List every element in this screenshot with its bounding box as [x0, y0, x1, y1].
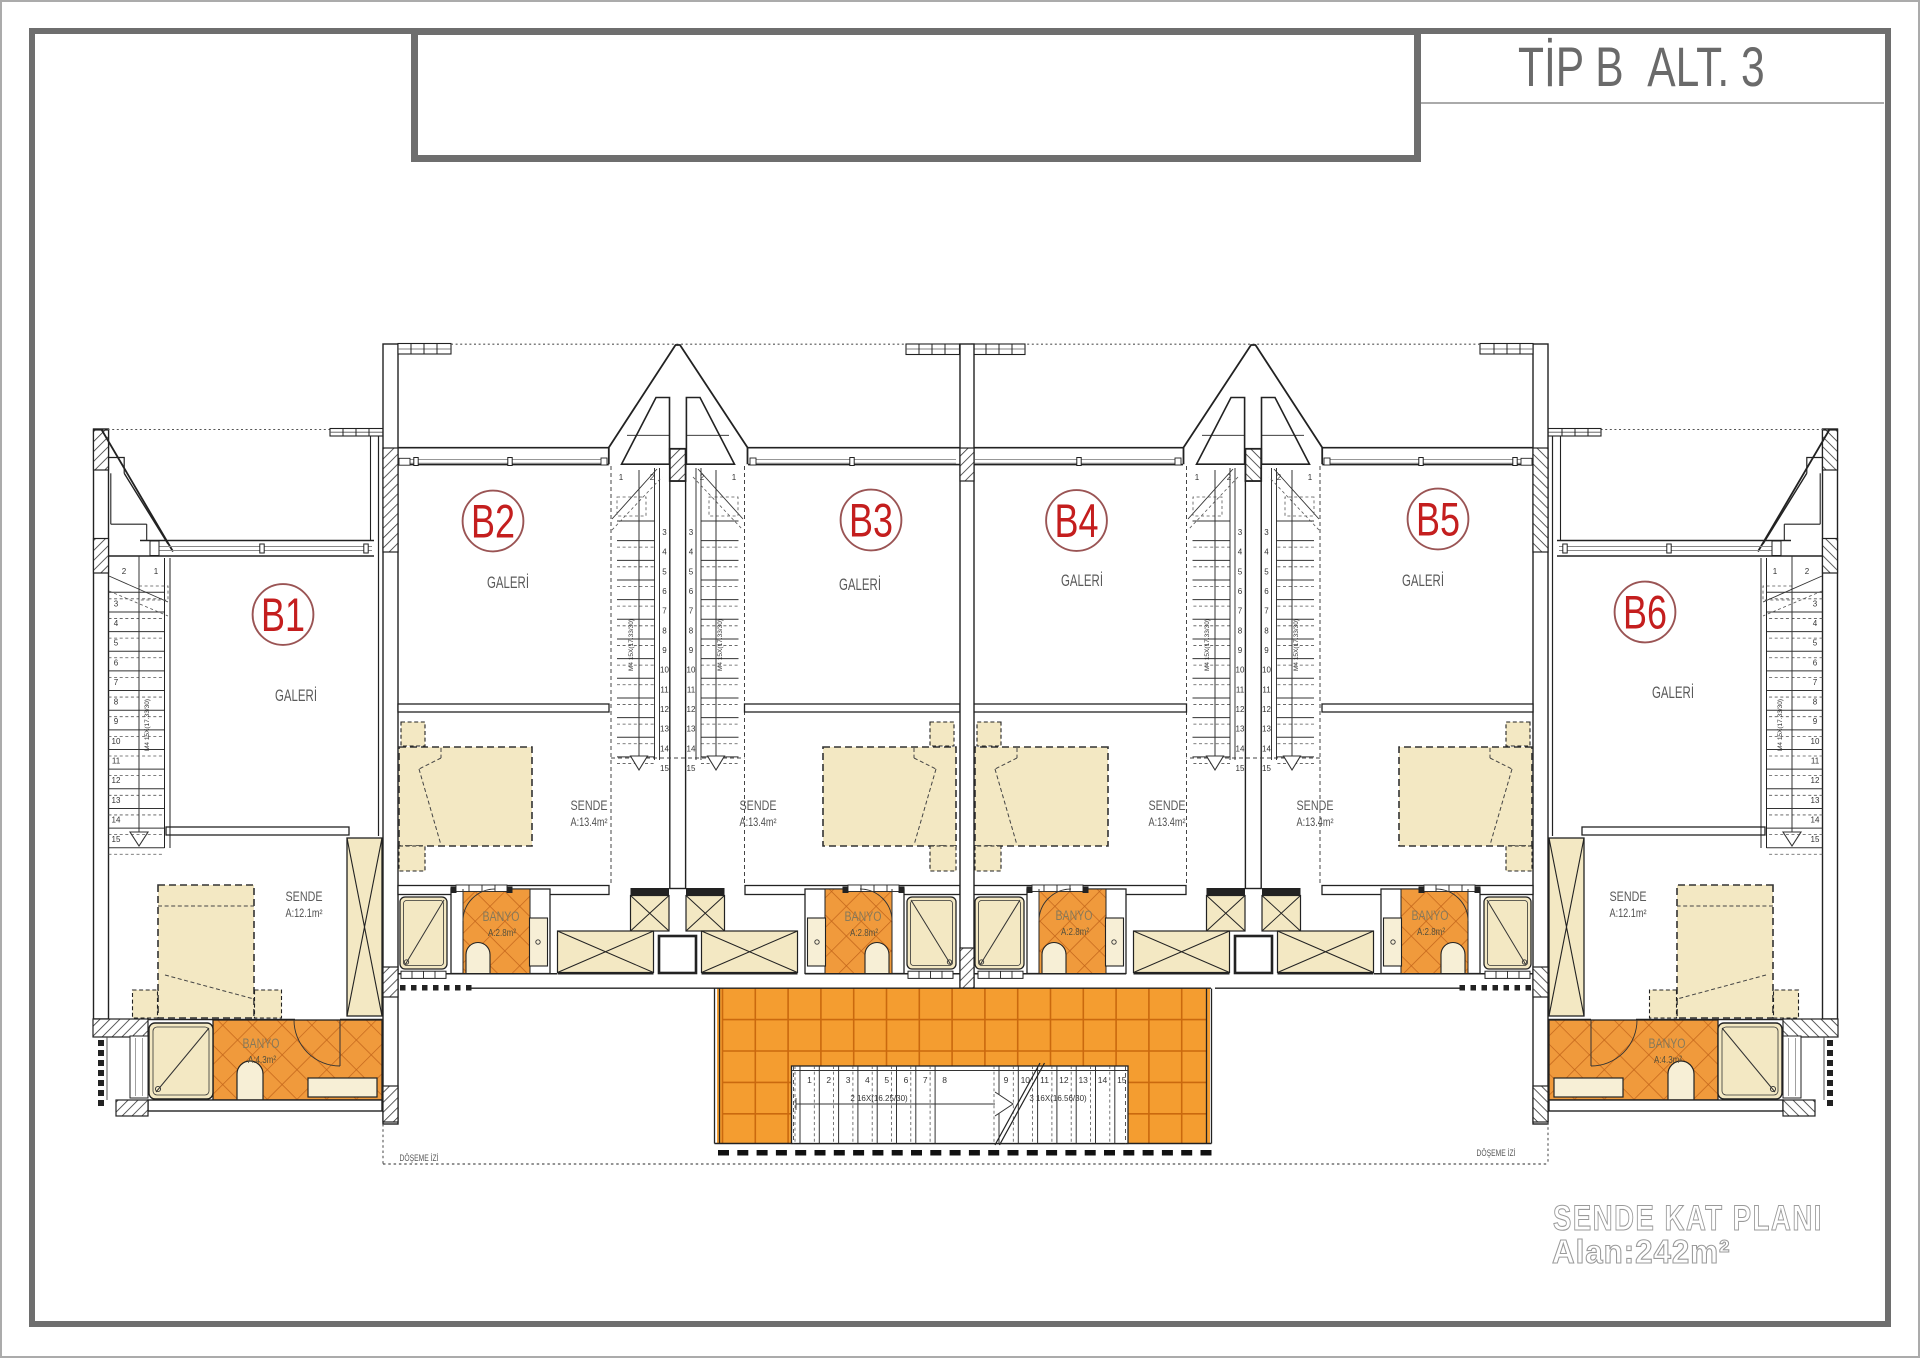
svg-text:15: 15 — [1117, 1075, 1127, 1085]
svg-text:11: 11 — [660, 685, 669, 694]
svg-text:5: 5 — [662, 567, 667, 576]
svg-text:9: 9 — [1238, 646, 1243, 655]
svg-text:12: 12 — [1059, 1075, 1069, 1085]
svg-text:8: 8 — [114, 698, 119, 707]
svg-text:9: 9 — [1813, 717, 1818, 726]
svg-text:6: 6 — [904, 1075, 909, 1085]
svg-text:BANYO: BANYO — [483, 909, 520, 924]
svg-text:10: 10 — [1236, 666, 1245, 675]
svg-text:1: 1 — [154, 567, 159, 576]
svg-text:2 16X(16.25/30): 2 16X(16.25/30) — [850, 1094, 908, 1103]
svg-text:3: 3 — [662, 528, 667, 537]
svg-text:SENDE: SENDE — [1297, 798, 1334, 813]
svg-text:13: 13 — [660, 725, 669, 734]
svg-text:12: 12 — [1262, 705, 1271, 714]
svg-text:11: 11 — [112, 757, 121, 766]
svg-text:7: 7 — [1238, 607, 1243, 616]
svg-text:6: 6 — [1238, 587, 1243, 596]
svg-text:B6: B6 — [1623, 586, 1667, 639]
svg-text:15: 15 — [1262, 764, 1271, 773]
svg-text:BANYO: BANYO — [1412, 908, 1449, 923]
svg-text:5: 5 — [689, 567, 694, 576]
svg-text:11: 11 — [687, 685, 696, 694]
svg-text:8: 8 — [1238, 626, 1243, 635]
svg-text:SENDE: SENDE — [1610, 889, 1647, 904]
svg-text:3 16X(16.56/30): 3 16X(16.56/30) — [1029, 1094, 1087, 1103]
svg-text:9: 9 — [662, 646, 667, 655]
svg-text:4: 4 — [1264, 548, 1269, 557]
svg-text:A:13.4m²: A:13.4m² — [740, 817, 777, 829]
svg-text:1: 1 — [619, 473, 624, 482]
svg-text:5: 5 — [1264, 567, 1269, 576]
svg-text:11: 11 — [1262, 685, 1271, 694]
svg-text:M4 15X(17.33/30): M4 15X(17.33/30) — [1777, 699, 1784, 751]
svg-text:B3: B3 — [849, 494, 893, 547]
svg-text:13: 13 — [1811, 796, 1820, 805]
svg-text:A:13.4m²: A:13.4m² — [1297, 817, 1334, 829]
svg-text:12: 12 — [1236, 705, 1245, 714]
svg-text:7: 7 — [662, 607, 667, 616]
svg-text:3: 3 — [846, 1075, 851, 1085]
svg-text:4: 4 — [114, 619, 119, 628]
svg-text:7: 7 — [1813, 678, 1818, 687]
svg-text:BANYO: BANYO — [1649, 1036, 1686, 1051]
svg-text:A:2.8m²: A:2.8m² — [488, 927, 516, 939]
svg-text:10: 10 — [687, 666, 696, 675]
svg-text:9: 9 — [689, 646, 694, 655]
svg-text:6: 6 — [1264, 587, 1269, 596]
svg-text:A:4.3m²: A:4.3m² — [1654, 1054, 1682, 1066]
svg-text:SENDE: SENDE — [286, 889, 323, 904]
svg-text:2: 2 — [1805, 567, 1810, 576]
svg-text:SENDE: SENDE — [571, 798, 608, 813]
svg-text:8: 8 — [662, 626, 667, 635]
svg-text:13: 13 — [1262, 725, 1271, 734]
svg-text:11: 11 — [1236, 685, 1245, 694]
svg-text:4: 4 — [689, 548, 694, 557]
svg-text:12: 12 — [660, 705, 669, 714]
svg-text:DÖŞEME İZİ: DÖŞEME İZİ — [400, 1153, 439, 1164]
svg-text:SENDE: SENDE — [740, 798, 777, 813]
svg-text:14: 14 — [687, 744, 696, 753]
svg-text:1: 1 — [807, 1075, 812, 1085]
svg-text:6: 6 — [662, 587, 667, 596]
svg-text:6: 6 — [114, 658, 119, 667]
svg-text:13: 13 — [1236, 725, 1245, 734]
svg-text:DÖŞEME İZİ: DÖŞEME İZİ — [1477, 1148, 1516, 1159]
svg-text:M4 15X(17.33/30): M4 15X(17.33/30) — [1293, 619, 1300, 671]
svg-text:13: 13 — [1078, 1075, 1088, 1085]
svg-text:4: 4 — [1238, 548, 1243, 557]
svg-text:15: 15 — [687, 764, 696, 773]
svg-text:14: 14 — [1262, 744, 1271, 753]
svg-text:GALERİ: GALERİ — [1402, 571, 1444, 590]
svg-text:14: 14 — [660, 744, 669, 753]
svg-text:10: 10 — [660, 666, 669, 675]
svg-text:15: 15 — [1236, 764, 1245, 773]
svg-text:A:2.8m²: A:2.8m² — [850, 927, 878, 939]
svg-text:B1: B1 — [261, 588, 305, 641]
svg-text:2: 2 — [826, 1075, 831, 1085]
svg-text:1: 1 — [732, 473, 737, 482]
svg-text:11: 11 — [1811, 757, 1820, 766]
svg-text:10: 10 — [1021, 1075, 1031, 1085]
svg-text:5: 5 — [114, 639, 119, 648]
svg-text:A:12.1m²: A:12.1m² — [1610, 908, 1647, 920]
svg-text:Alan:242m²: Alan:242m² — [1552, 1233, 1730, 1270]
svg-text:8: 8 — [689, 626, 694, 635]
svg-text:12: 12 — [112, 776, 121, 785]
svg-text:M4 15X(17.33/30): M4 15X(17.33/30) — [628, 619, 635, 671]
svg-text:11: 11 — [1040, 1075, 1049, 1085]
svg-text:2: 2 — [122, 567, 127, 576]
svg-text:4: 4 — [865, 1075, 870, 1085]
svg-text:4: 4 — [662, 548, 667, 557]
svg-text:1: 1 — [1773, 567, 1778, 576]
svg-text:15: 15 — [1811, 835, 1820, 844]
svg-text:14: 14 — [1236, 744, 1245, 753]
svg-text:7: 7 — [689, 607, 694, 616]
svg-text:5: 5 — [1813, 639, 1818, 648]
svg-text:12: 12 — [687, 705, 696, 714]
svg-text:3: 3 — [114, 599, 119, 608]
svg-text:M4 15X(17.33/30): M4 15X(17.33/30) — [1204, 619, 1211, 671]
svg-text:7: 7 — [1264, 607, 1269, 616]
svg-text:B4: B4 — [1055, 494, 1099, 547]
svg-text:15: 15 — [660, 764, 669, 773]
svg-text:13: 13 — [112, 796, 121, 805]
svg-text:13: 13 — [687, 725, 696, 734]
svg-text:GALERİ: GALERİ — [487, 573, 529, 592]
svg-text:12: 12 — [1811, 776, 1820, 785]
svg-text:SENDE KAT PLANI: SENDE KAT PLANI — [1553, 1198, 1823, 1238]
svg-text:GALERİ: GALERİ — [275, 686, 317, 705]
svg-text:2: 2 — [650, 473, 655, 482]
svg-text:4: 4 — [1813, 619, 1818, 628]
svg-text:5: 5 — [884, 1075, 889, 1085]
svg-text:7: 7 — [923, 1075, 928, 1085]
svg-text:A:2.8m²: A:2.8m² — [1061, 926, 1089, 938]
svg-text:1: 1 — [1308, 473, 1313, 482]
svg-text:M4 15X(17.33/30): M4 15X(17.33/30) — [717, 619, 724, 671]
svg-text:3: 3 — [1238, 528, 1243, 537]
svg-text:BANYO: BANYO — [845, 909, 882, 924]
svg-text:9: 9 — [114, 717, 119, 726]
svg-text:A:12.1m²: A:12.1m² — [286, 908, 323, 920]
svg-text:GALERİ: GALERİ — [1652, 683, 1694, 702]
svg-text:5: 5 — [1238, 567, 1243, 576]
svg-text:6: 6 — [1813, 658, 1818, 667]
svg-text:1: 1 — [1195, 473, 1200, 482]
svg-text:A:4.3m²: A:4.3m² — [248, 1054, 276, 1066]
svg-text:2: 2 — [700, 473, 705, 482]
svg-text:BANYO: BANYO — [243, 1036, 280, 1051]
svg-text:2: 2 — [1227, 473, 1232, 482]
svg-text:SENDE: SENDE — [1149, 798, 1186, 813]
svg-text:A:13.4m²: A:13.4m² — [1149, 817, 1186, 829]
svg-text:B5: B5 — [1416, 493, 1460, 546]
svg-text:A:13.4m²: A:13.4m² — [571, 817, 608, 829]
svg-text:3: 3 — [1813, 599, 1818, 608]
svg-text:10: 10 — [1811, 737, 1820, 746]
svg-text:8: 8 — [942, 1075, 947, 1085]
svg-text:14: 14 — [112, 815, 121, 824]
svg-text:7: 7 — [114, 678, 119, 687]
svg-text:A:2.8m²: A:2.8m² — [1417, 926, 1445, 938]
svg-text:B2: B2 — [471, 495, 515, 548]
svg-text:6: 6 — [689, 587, 694, 596]
svg-text:BANYO: BANYO — [1056, 908, 1093, 923]
svg-text:TİP B ALT. 3: TİP B ALT. 3 — [1518, 35, 1765, 98]
svg-text:14: 14 — [1811, 815, 1820, 824]
svg-text:GALERİ: GALERİ — [1061, 571, 1103, 590]
svg-text:9: 9 — [1264, 646, 1269, 655]
svg-text:2: 2 — [1277, 473, 1282, 482]
svg-text:9: 9 — [1004, 1075, 1009, 1085]
svg-text:15: 15 — [112, 835, 121, 844]
svg-text:M4 15X(17.33/30): M4 15X(17.33/30) — [144, 699, 151, 751]
svg-text:3: 3 — [1264, 528, 1269, 537]
svg-text:10: 10 — [1262, 666, 1271, 675]
svg-text:10: 10 — [112, 737, 121, 746]
svg-text:8: 8 — [1813, 698, 1818, 707]
svg-text:14: 14 — [1098, 1075, 1108, 1085]
svg-text:3: 3 — [689, 528, 694, 537]
svg-text:8: 8 — [1264, 626, 1269, 635]
svg-text:GALERİ: GALERİ — [839, 575, 881, 594]
